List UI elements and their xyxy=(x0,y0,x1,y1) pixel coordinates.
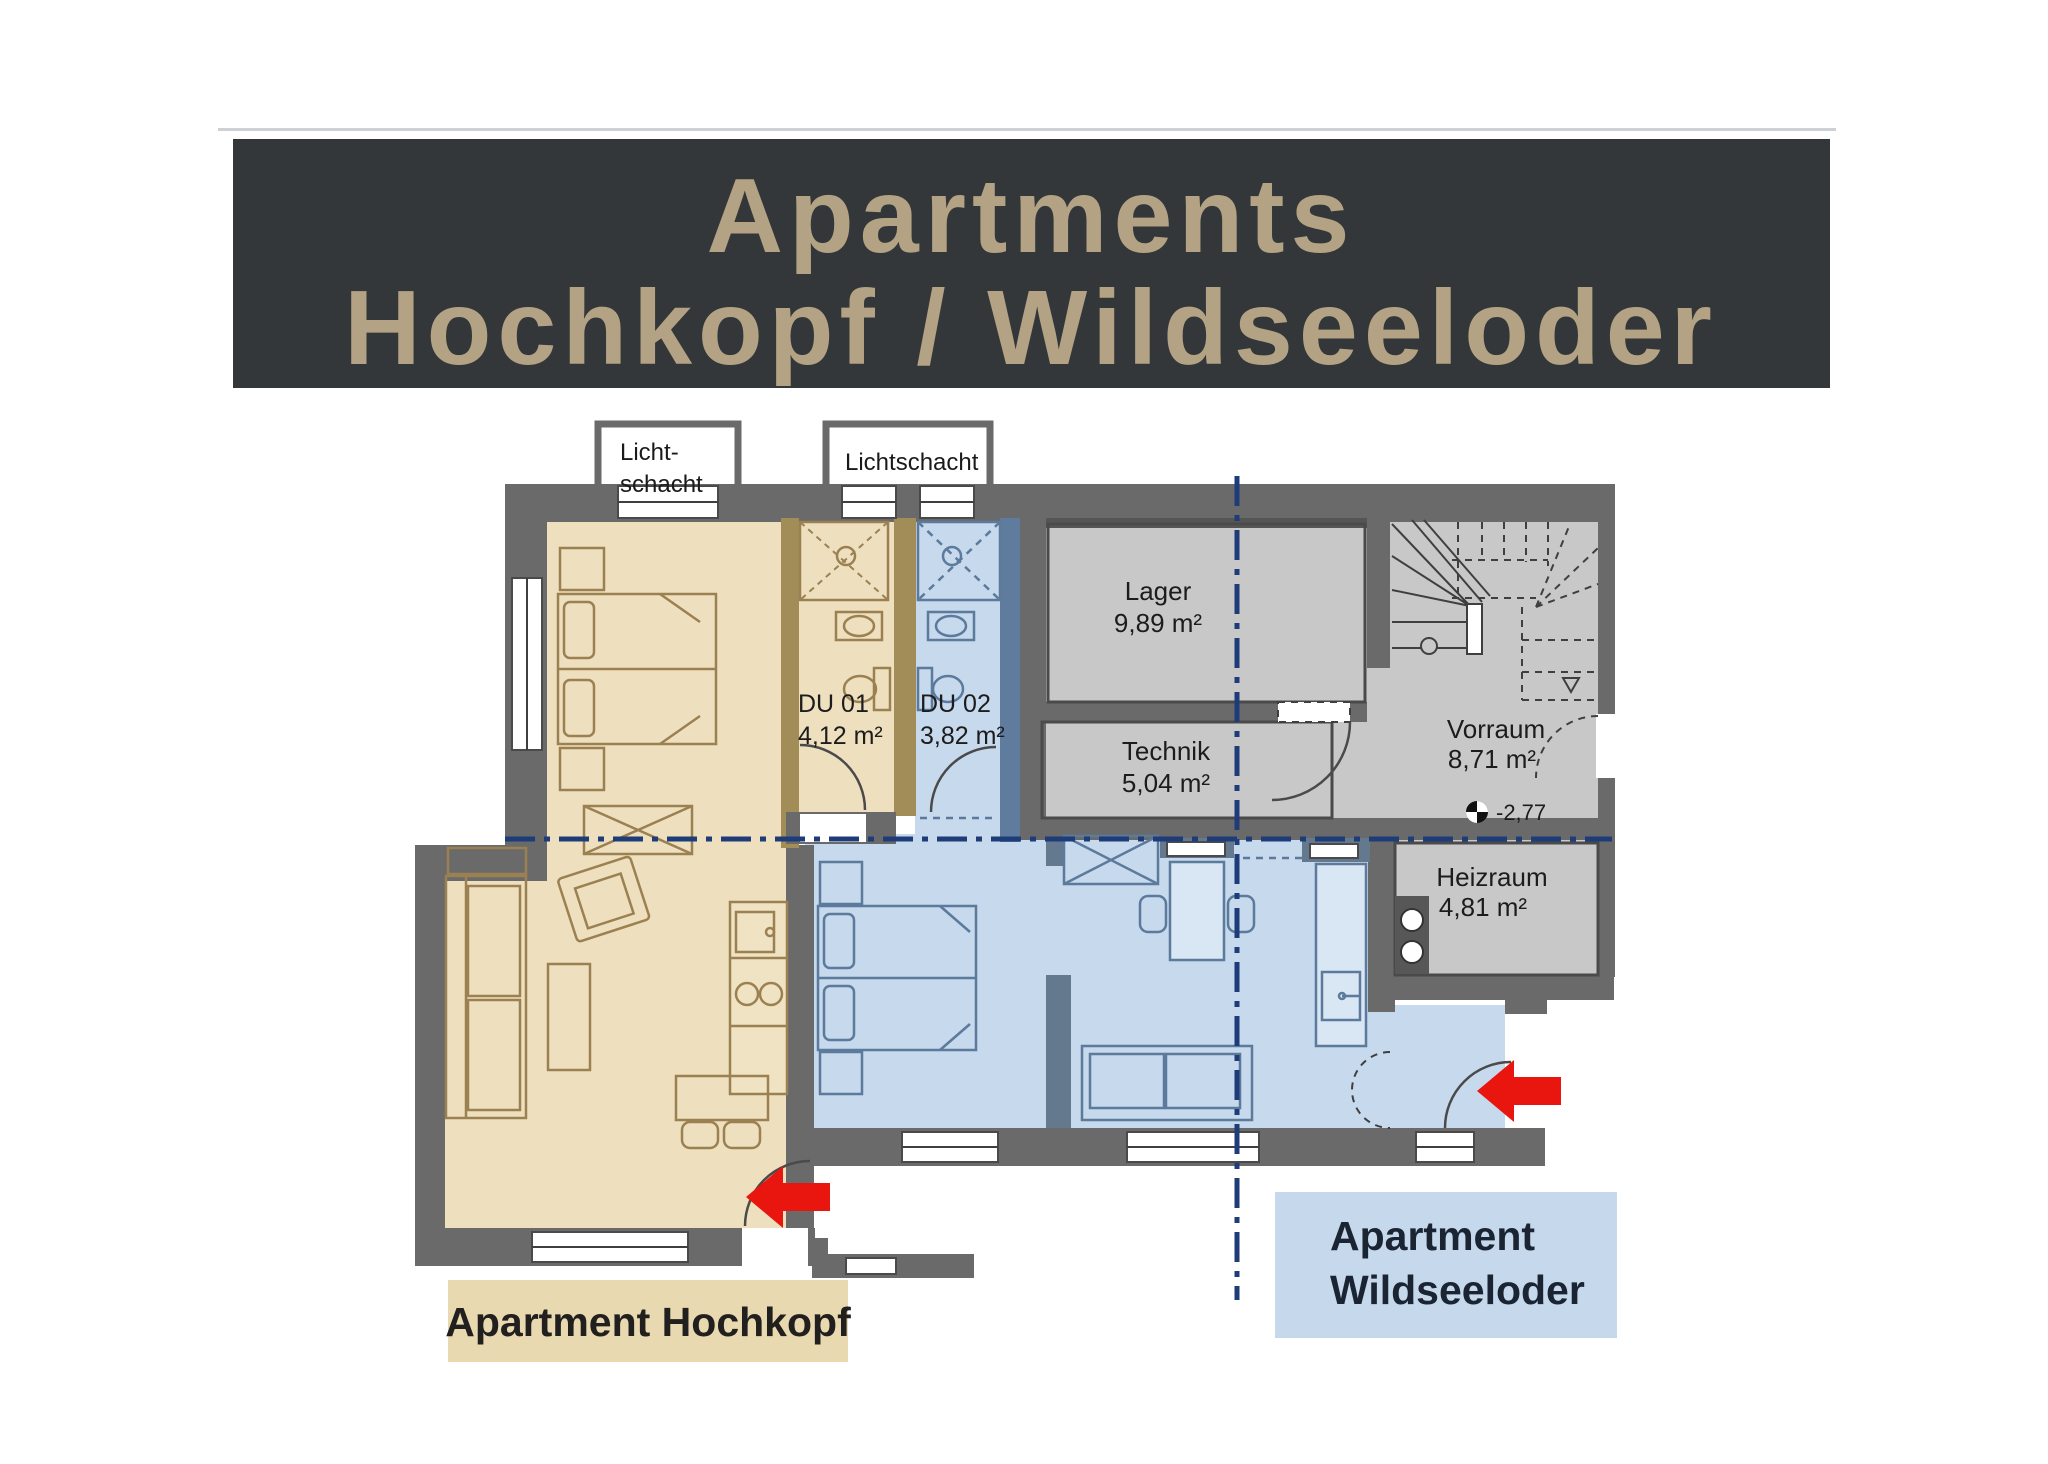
label-vorraum-area: 8,71 m² xyxy=(1448,744,1536,774)
window-hochkopf-bottom xyxy=(532,1232,688,1262)
stair-newel xyxy=(1467,604,1482,654)
room-lager-floor xyxy=(1046,518,1367,702)
label-technik-name: Technik xyxy=(1122,736,1211,766)
label-du01-name: DU 01 xyxy=(798,690,869,718)
wall-heizraum-bottom xyxy=(1368,975,1614,1000)
wall-right-mid xyxy=(1598,777,1615,840)
wall-right-heizraum xyxy=(1598,840,1615,977)
window-pier-3 xyxy=(1310,844,1358,858)
window-lightshaft-right-a xyxy=(842,486,896,518)
header-title-line2: Hochkopf / Wildseeloder xyxy=(344,269,1718,387)
label-lager-name: Lager xyxy=(1125,576,1192,606)
label-heizraum-area: 4,81 m² xyxy=(1439,892,1527,922)
label-vorraum-name: Vorraum xyxy=(1447,714,1545,744)
kitchenette-wildseeloder xyxy=(1316,864,1366,1046)
lightshaft-right-label: Lichtschacht xyxy=(845,449,979,476)
wall-du01-du02 xyxy=(894,518,916,816)
window-wildseeloder-1 xyxy=(902,1132,998,1162)
label-du02-area: 3,82 m² xyxy=(920,722,1005,750)
lightshaft-left-label-1: Licht- xyxy=(620,439,679,466)
window-lightshaft-right-b xyxy=(920,486,974,518)
nameplate-hochkopf-text: Apartment Hochkopf xyxy=(445,1299,851,1345)
label-heizraum-name: Heizraum xyxy=(1436,862,1547,892)
boiler-heizraum xyxy=(1395,896,1429,974)
slide: Apartments Hochkopf / Wildseeloder xyxy=(0,0,2048,1464)
label-du01-area: 4,12 m² xyxy=(798,722,883,750)
header-title-line1: Apartments xyxy=(706,157,1355,275)
label-technik-area: 5,04 m² xyxy=(1122,768,1210,798)
slide-top-rule xyxy=(218,128,1836,131)
lightshaft-left-label-2: schacht xyxy=(620,471,703,498)
window-hochkopf-left xyxy=(512,578,542,750)
wall-lager-right xyxy=(1367,518,1390,668)
window-pier-2 xyxy=(1167,842,1225,856)
label-du02-name: DU 02 xyxy=(920,690,991,718)
nameplate-wildseeloder-text-2: Wildseeloder xyxy=(1330,1267,1585,1313)
wall-right-upper xyxy=(1598,518,1615,716)
room-vestibule-connector xyxy=(1368,1012,1398,1128)
wall-du02-right xyxy=(1000,518,1020,842)
door-opening-hochkopf-entry xyxy=(742,1228,808,1266)
floor-plan-canvas: Apartments Hochkopf / Wildseeloder xyxy=(0,0,2048,1464)
wall-pier-1 xyxy=(1046,840,1064,866)
wall-divider-apartments xyxy=(786,845,814,1230)
door-opening-lager xyxy=(1278,702,1350,722)
level-marker-icon xyxy=(1466,801,1488,823)
label-vorraum-level: -2,77 xyxy=(1496,800,1546,825)
kitchen-hochkopf xyxy=(730,902,787,1094)
wall-vestibule-stub xyxy=(1505,998,1547,1014)
window-step-right xyxy=(846,1258,896,1274)
window-vestibule xyxy=(1416,1132,1474,1162)
header-banner: Apartments Hochkopf / Wildseeloder xyxy=(233,139,1830,388)
nameplate-wildseeloder-text-1: Apartment xyxy=(1330,1213,1535,1259)
wall-bedroom-du01 xyxy=(781,518,799,848)
label-lager-area: 9,89 m² xyxy=(1114,608,1202,638)
wall-partition-blue xyxy=(1046,975,1071,1128)
wall-left-lower xyxy=(415,845,445,1265)
door-opening-vorraum xyxy=(1596,714,1616,778)
